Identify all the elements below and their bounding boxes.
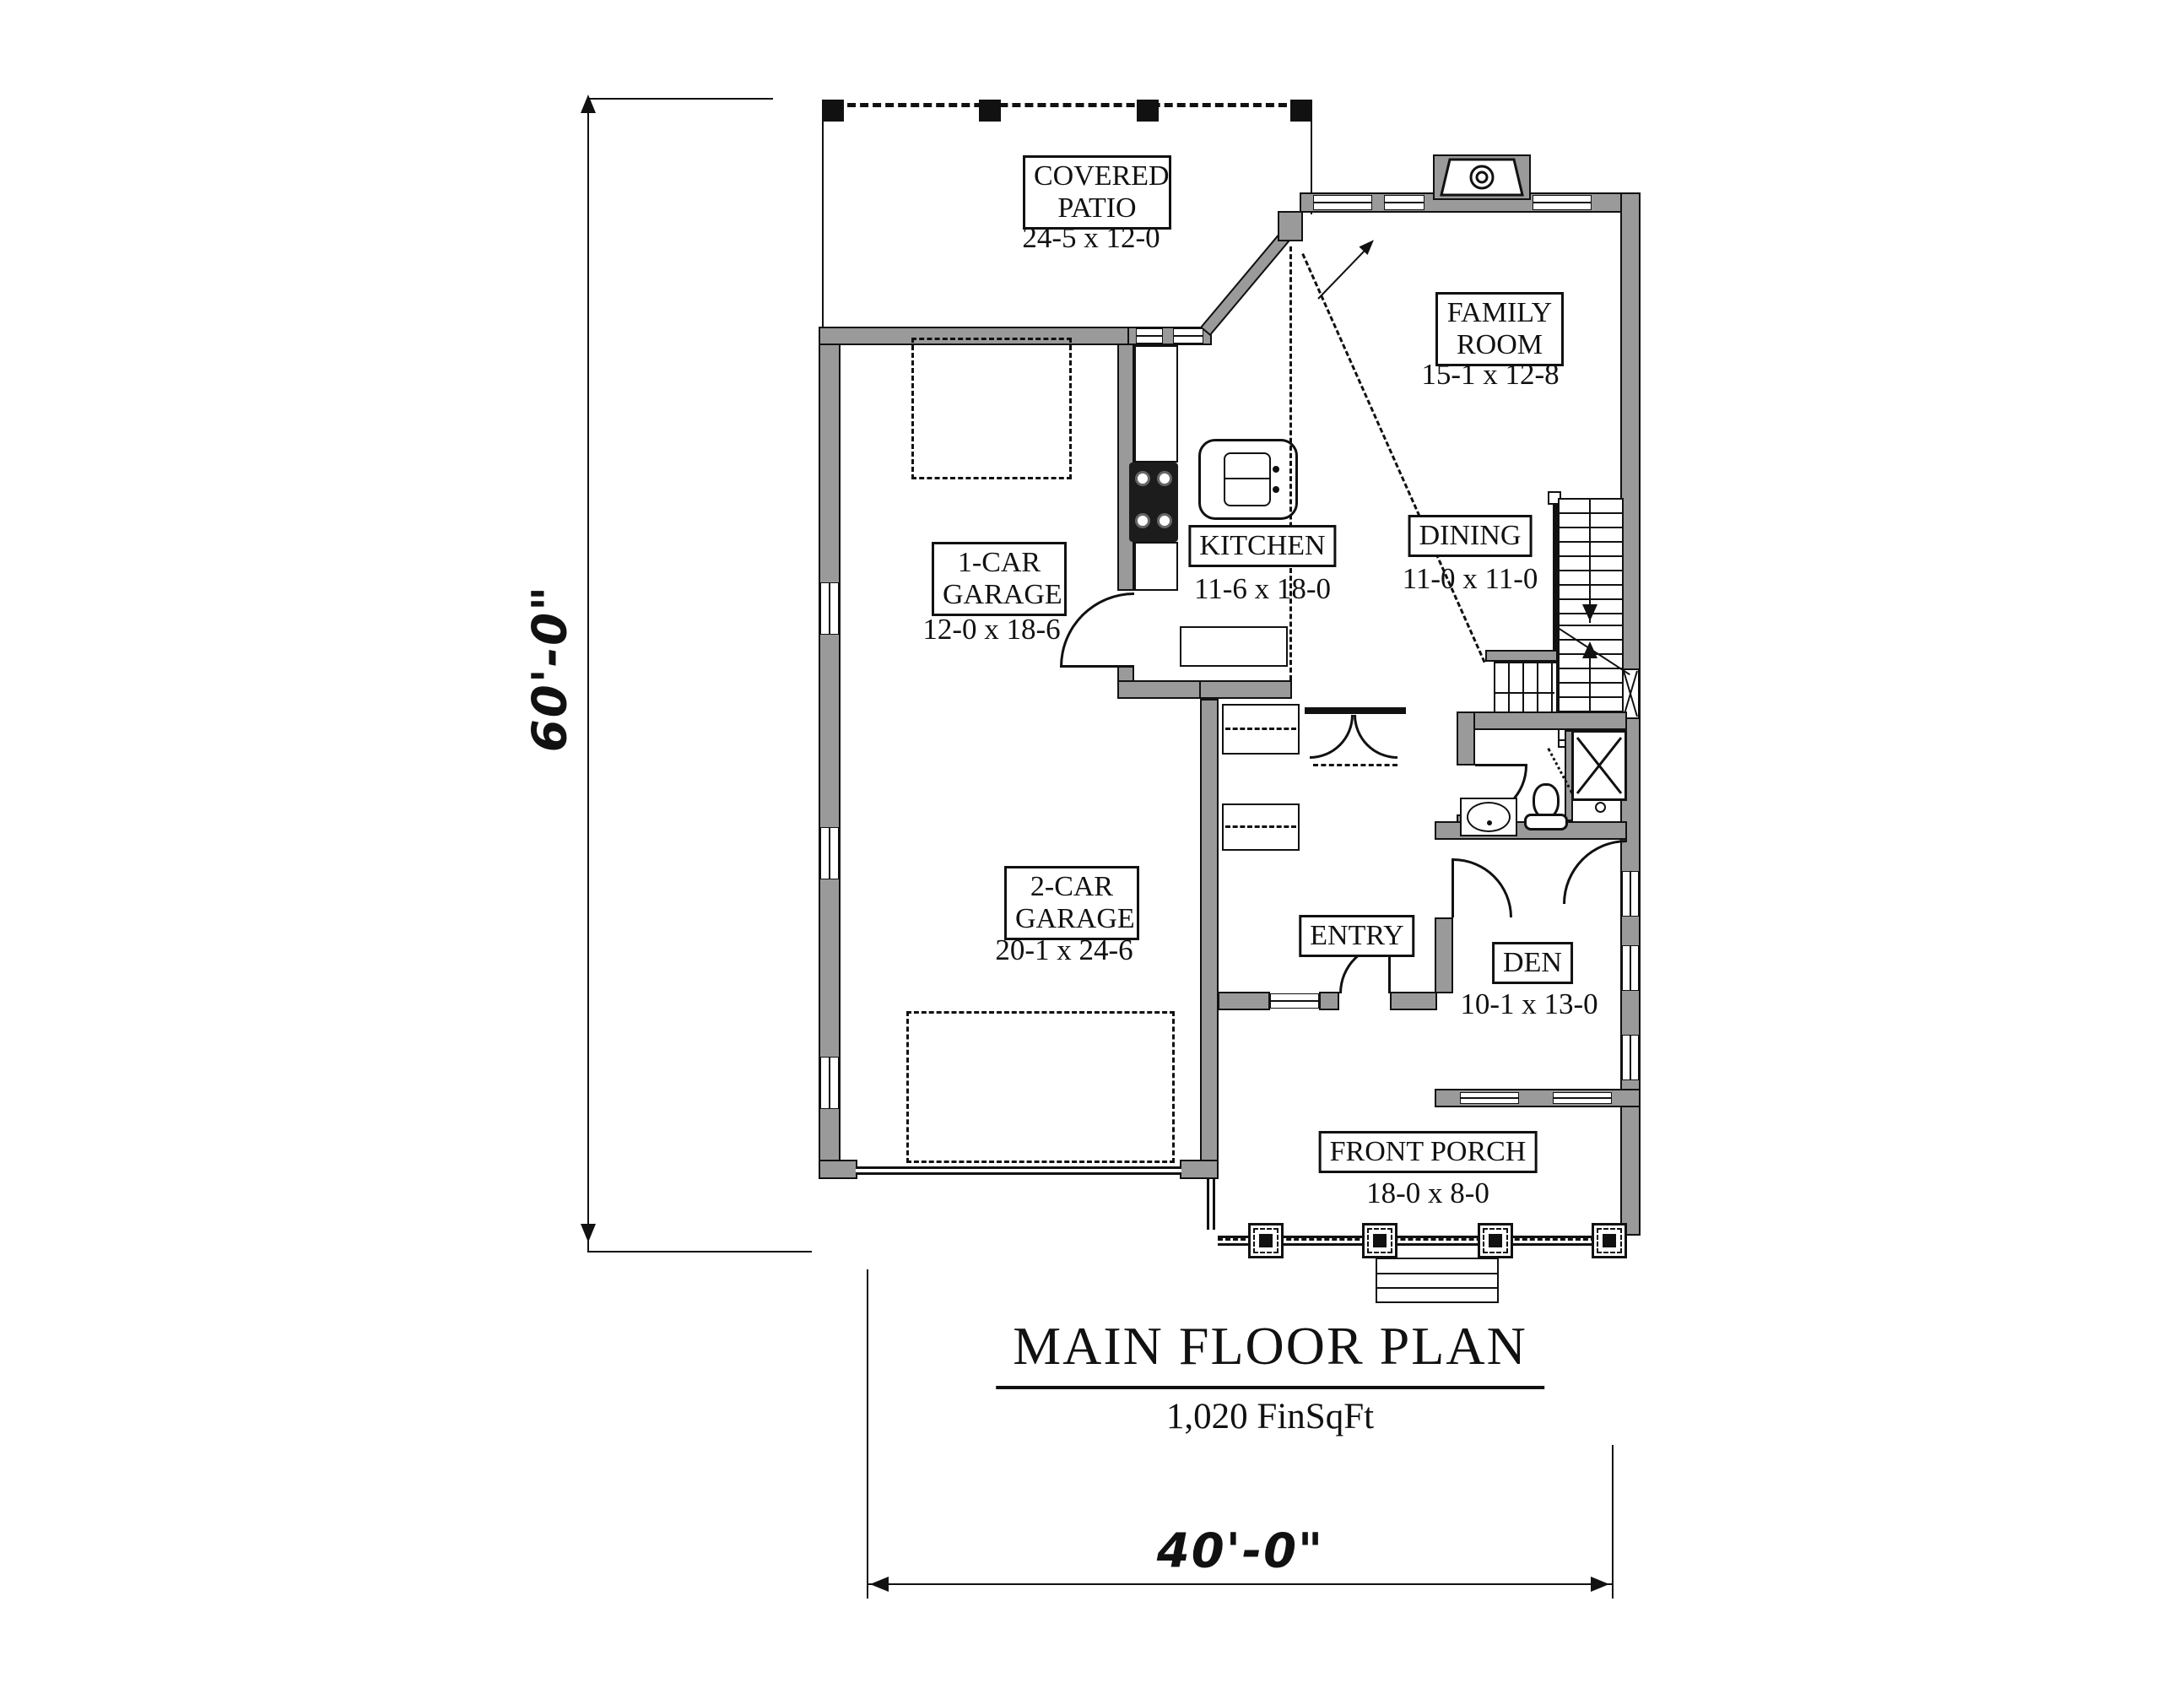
family-room-window <box>1313 195 1372 210</box>
garage1-dashed-outline <box>911 338 1072 479</box>
burner-icon <box>1135 513 1150 528</box>
slider-arrow-line <box>1317 250 1365 300</box>
burner-icon <box>1157 471 1172 486</box>
dim-arrow-right-icon <box>1591 1577 1609 1592</box>
entry-front-wall <box>1218 992 1270 1010</box>
post-core <box>1373 1234 1387 1247</box>
garage-door-line <box>856 1166 1181 1175</box>
width-dim-extension-right <box>1612 1445 1614 1599</box>
kitchen-lower-counter <box>1180 626 1288 667</box>
room-label-family-room: FAMILY ROOM <box>1435 292 1564 366</box>
dim-arrow-left-icon <box>870 1577 889 1592</box>
room-size-kitchen: 11-6 x 18-0 <box>1194 572 1331 606</box>
garage-left-wall <box>819 327 841 1179</box>
garage-door-swing <box>1060 592 1134 667</box>
family-room-window <box>1533 195 1592 210</box>
family-room-window <box>1384 195 1424 210</box>
overall-height-dimension: 60'-0" <box>523 585 578 752</box>
garage-window <box>820 582 839 635</box>
entry-front-wall <box>1319 992 1339 1010</box>
den-front-window <box>1460 1092 1519 1104</box>
faucet-dot <box>1273 466 1279 473</box>
den-closet-door-swing <box>1563 840 1627 904</box>
entry-front-wall <box>1390 992 1437 1010</box>
patio-post <box>822 100 844 122</box>
fireplace-bumpout <box>1433 154 1531 200</box>
room-label-dining: DINING <box>1408 515 1533 557</box>
slider-arrow <box>1317 240 1376 300</box>
step-line <box>1377 1287 1497 1289</box>
closet-header <box>1305 707 1406 714</box>
patio-post <box>1137 100 1159 122</box>
island-sink <box>1224 452 1271 506</box>
stair-header-wall <box>1485 650 1558 662</box>
den-window <box>1622 945 1639 991</box>
dim-arrow-up-icon <box>581 95 596 113</box>
porch-post <box>1478 1223 1513 1258</box>
patio-post <box>979 100 1001 122</box>
porch-steps <box>1376 1258 1499 1303</box>
room-size-front-porch: 18-0 x 8-0 <box>1366 1177 1489 1210</box>
toilet-tank-icon <box>1524 814 1568 830</box>
porch-post <box>1592 1223 1627 1258</box>
entry-window <box>1270 993 1319 1009</box>
den-entry-wall <box>1435 917 1453 993</box>
room-label-front-porch: FRONT PORCH <box>1319 1131 1538 1173</box>
garage-window <box>820 827 839 879</box>
width-dim-extension-left <box>867 1269 868 1599</box>
room-size-1car-garage: 12-0 x 18-6 <box>922 613 1060 647</box>
angled-wall-cap <box>1278 211 1303 241</box>
room-size-dining: 11-0 x 11-0 <box>1403 562 1538 596</box>
bath-top-wall <box>1457 711 1627 730</box>
post-core <box>1489 1234 1502 1247</box>
height-dim-line <box>587 98 589 1252</box>
shower-x-icon <box>1574 733 1624 798</box>
porch-post <box>1248 1223 1284 1258</box>
stair-up-arrow-icon <box>1582 641 1597 658</box>
room-label-entry: ENTRY <box>1299 915 1414 957</box>
room-label-1car-garage: 1-CAR GARAGE <box>932 542 1067 616</box>
room-size-covered-patio: 24-5 x 12-0 <box>1022 221 1160 255</box>
floor-plan-canvas: 60'-0" 40'-0" <box>0 0 2184 1688</box>
kitchen-hall-wall <box>1199 680 1292 699</box>
plan-title: MAIN FLOOR PLAN <box>996 1315 1544 1389</box>
garage2-dashed-outline <box>906 1011 1175 1163</box>
closet-door-swing <box>1354 715 1397 759</box>
shower-drain-dot <box>1595 802 1606 813</box>
dim-arrow-down-icon <box>581 1224 596 1242</box>
overall-width-dimension: 40'-0" <box>1157 1524 1324 1579</box>
x-window-icon <box>1623 670 1638 717</box>
kitchen-counter <box>1134 542 1178 591</box>
basement-stair-center <box>1494 692 1554 694</box>
post-core <box>1603 1234 1616 1247</box>
closet-rod <box>1313 764 1397 766</box>
den-door-swing <box>1453 858 1512 917</box>
kitchen-counter <box>1134 345 1178 463</box>
faucet-dot <box>1273 486 1279 493</box>
width-dim-line <box>867 1583 1614 1585</box>
shower <box>1571 730 1627 801</box>
post-core <box>1259 1234 1273 1247</box>
plan-area-sqft: 1,020 FinSqFt <box>1166 1396 1374 1437</box>
den-window <box>1622 1035 1639 1080</box>
garage-door-corner <box>819 1160 857 1179</box>
vanity-sink-icon <box>1467 802 1511 832</box>
stair-down-arrow-icon <box>1582 604 1597 621</box>
fireplace-icon <box>1435 156 1529 198</box>
height-dim-extension-bottom <box>587 1251 812 1252</box>
sink-divider <box>1225 478 1269 479</box>
bath-left-wall-upper <box>1457 711 1475 766</box>
height-dim-extension-top <box>587 98 773 100</box>
stove-icon <box>1129 463 1178 542</box>
vanity-drain-dot <box>1487 820 1492 825</box>
garage-right-wall-stub <box>1117 665 1134 682</box>
porch-left-railing <box>1207 1179 1215 1230</box>
ceiling-break-line <box>1289 246 1292 680</box>
garage-door-corner <box>1180 1160 1219 1179</box>
room-size-2car-garage: 20-1 x 24-6 <box>995 933 1133 967</box>
step-line <box>1377 1273 1497 1274</box>
room-label-2car-garage: 2-CAR GARAGE <box>1004 866 1139 940</box>
garage-window <box>820 1057 839 1109</box>
garage-right-wall-lower <box>1200 699 1219 1179</box>
kitchen-window <box>1136 328 1163 344</box>
closet-door-swing <box>1310 715 1354 759</box>
bench-dash <box>1225 728 1296 730</box>
room-size-den: 10-1 x 13-0 <box>1460 987 1597 1021</box>
burner-icon <box>1157 513 1172 528</box>
room-label-kitchen: KITCHEN <box>1188 525 1336 567</box>
room-size-family-room: 15-1 x 12-8 <box>1421 358 1559 392</box>
patio-post <box>1290 100 1312 122</box>
burner-icon <box>1135 471 1150 486</box>
room-label-den: DEN <box>1492 942 1573 984</box>
den-front-window <box>1553 1092 1612 1104</box>
cabinet-dash <box>1225 825 1296 828</box>
porch-post <box>1362 1223 1397 1258</box>
room-label-covered-patio: COVERED PATIO <box>1023 155 1171 230</box>
kitchen-window <box>1173 328 1203 344</box>
